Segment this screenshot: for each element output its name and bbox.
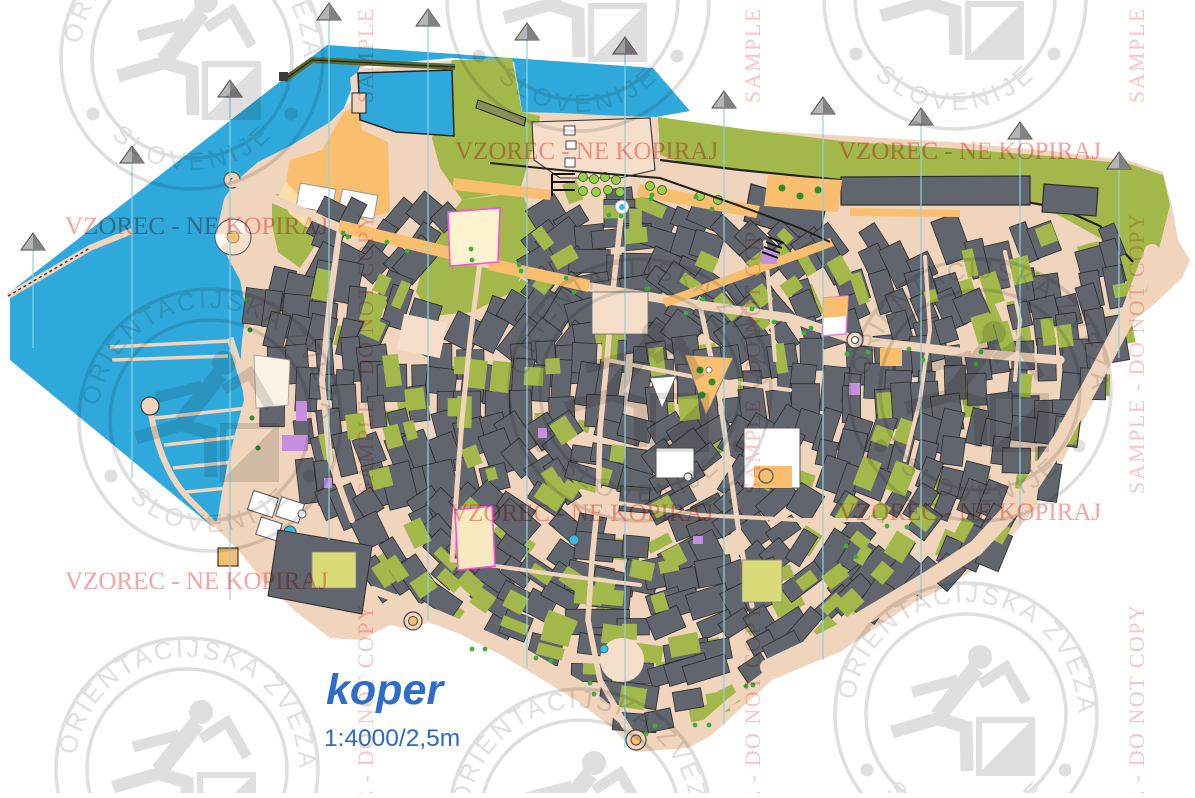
svg-text:VZOREC - NE KOPIRAJ: VZOREC - NE KOPIRAJ	[455, 138, 718, 165]
svg-text:VZOREC - NE KOPIRAJ: VZOREC - NE KOPIRAJ	[450, 500, 713, 527]
svg-text:VZOREC - NE KOPIRAJ: VZOREC - NE KOPIRAJ	[838, 499, 1101, 526]
svg-text:SAMPLE - DO NOT COPY: SAMPLE - DO NOT COPY	[740, 0, 765, 103]
svg-text:SAMPLE - DO NOT COPY: SAMPLE - DO NOT COPY	[1124, 0, 1149, 103]
svg-text:VZOREC - NE KOPIRAJ: VZOREC - NE KOPIRAJ	[65, 568, 328, 595]
svg-text:VZOREC - NE KOPIRAJ: VZOREC - NE KOPIRAJ	[838, 138, 1101, 165]
svg-text:koper: koper	[326, 666, 445, 714]
svg-text:SAMPLE - DO NOT COPY: SAMPLE - DO NOT COPY	[353, 213, 378, 494]
svg-text:1:4000/2,5m: 1:4000/2,5m	[324, 725, 460, 752]
svg-text:SAMPLE - DO NOT COPY: SAMPLE - DO NOT COPY	[353, 0, 378, 103]
svg-text:SAMPLE - DO NOT COPY: SAMPLE - DO NOT COPY	[740, 604, 765, 793]
svg-text:VZOREC - NE KOPIRAJ: VZOREC - NE KOPIRAJ	[65, 213, 328, 240]
svg-text:SAMPLE - DO NOT COPY: SAMPLE - DO NOT COPY	[1124, 604, 1149, 793]
svg-text:SAMPLE - DO NOT COPY: SAMPLE - DO NOT COPY	[740, 213, 765, 494]
svg-text:SAMPLE - DO NOT COPY: SAMPLE - DO NOT COPY	[1124, 213, 1149, 494]
